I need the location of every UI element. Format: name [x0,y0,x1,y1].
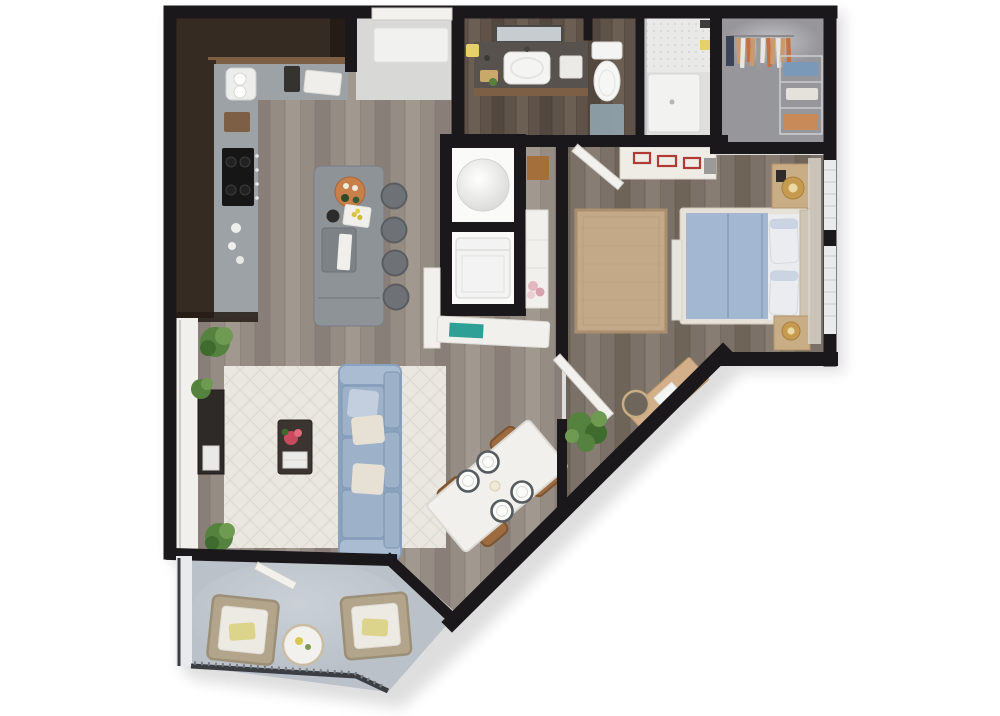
coffee-maker [284,66,300,92]
soap-pump [484,55,490,61]
table-item-yellow [295,637,303,645]
place-setting [512,482,533,503]
bar-stool [384,285,409,310]
yellow-pillow [361,618,388,636]
desk-chair [623,391,649,417]
throw-pillow [347,389,380,420]
entry [374,28,448,62]
sofa-back-cushion [384,372,400,428]
dresser [620,147,716,179]
floor-plan-image [0,0,1000,716]
bar-stool [382,218,407,243]
napkin-with-lemons [343,204,372,227]
bedroom-rug [576,210,666,332]
nightstand [774,316,810,350]
left-cabinets [176,60,216,318]
dish [236,256,244,264]
cutting-board [224,112,250,132]
patio-chair [340,592,411,660]
teal-books [449,323,484,339]
faucet [524,46,530,52]
nightstand [772,164,810,208]
bath-mat [590,104,624,136]
coffee-table [278,420,312,474]
bar-stool [382,184,407,209]
white-tray [304,70,342,96]
toilet [592,42,622,101]
window [824,246,836,334]
washer [456,238,510,298]
wall-cabinet [527,156,549,180]
floor-plan-svg [0,0,1000,716]
wall-living-balcony [172,554,391,560]
place-setting [458,471,479,492]
door-mat [374,28,448,62]
sofa [338,364,402,560]
table-item-green [305,644,311,650]
yellow-pillow [229,622,256,641]
flower-leaves [282,429,289,436]
shower-drain [670,100,675,105]
sofa-back-cushion [384,432,400,488]
red-flowers [294,429,302,437]
place-setting [478,452,499,473]
folded-clothes [784,114,818,130]
foot-bench [672,240,682,320]
patio-chair [207,595,279,666]
bar-stool [383,251,408,276]
sofa-back-cushion [384,492,400,548]
game-console [203,446,219,470]
bed [672,208,810,324]
pillow-blue-trim [770,219,798,229]
yellow-towels [466,44,479,57]
sofa-cushion [342,490,384,538]
dresser-tv [704,158,716,174]
patio-table [283,625,323,665]
vanity-plant [489,78,497,86]
living-rug [224,366,446,548]
folded-clothes [786,88,818,100]
nightstand-clock [776,170,786,182]
throw-pillow [351,463,385,495]
garment [726,36,734,66]
sink-basin [234,73,246,85]
shower [644,16,714,138]
vanity-wood-edge [474,88,588,96]
bench [437,316,550,348]
mirror [496,26,562,42]
serving-board [335,177,365,207]
centerpiece [490,481,500,491]
throw-pillow [351,415,385,446]
sink-basin [234,86,246,98]
kitchen-island [314,166,384,326]
media-console [198,390,224,474]
water-heater [457,159,509,211]
dish-towel [337,234,352,271]
wire-shelving [780,56,822,134]
cooktop [222,148,259,206]
white-towel [560,56,582,78]
place-setting [492,501,513,522]
folded-clothes [784,62,818,76]
dish [231,223,241,233]
dark-bowl [327,210,340,223]
entry-door [372,8,452,20]
pillow-blue-trim [770,271,798,281]
dish [228,242,236,250]
